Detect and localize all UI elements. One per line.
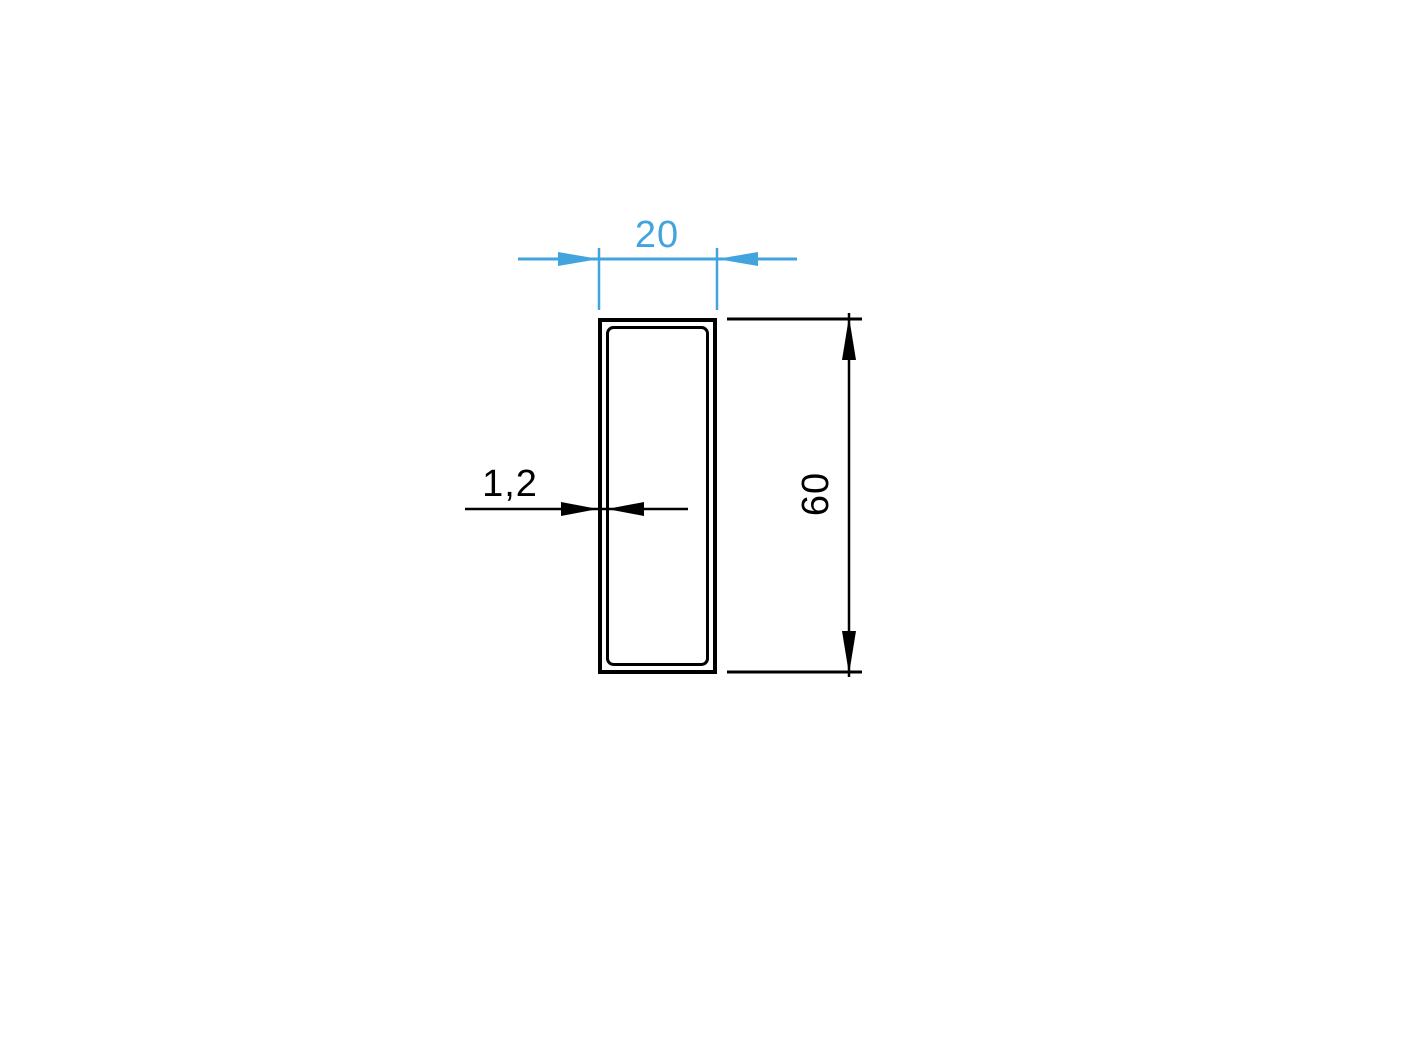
thickness-dimension-label: 1,2 — [482, 463, 538, 505]
drawing-canvas: 20 60 1,2 — [0, 0, 1417, 1062]
profile-inner-contour — [608, 328, 708, 665]
height-arrow-up-icon — [842, 317, 856, 360]
width-arrow-right-icon — [717, 252, 758, 266]
thickness-arrow-right-icon — [561, 502, 598, 516]
width-arrow-left-icon — [558, 252, 599, 266]
tube-profile — [600, 320, 715, 672]
height-arrow-down-icon — [842, 631, 856, 674]
width-dimension-label: 20 — [635, 214, 679, 256]
thickness-arrow-left-icon — [607, 502, 644, 516]
profile-outer-contour — [600, 320, 715, 672]
height-dimension-label: 60 — [795, 472, 837, 516]
height-dimension: 60 — [727, 313, 862, 677]
width-dimension: 20 — [518, 214, 797, 310]
technical-drawing: 20 60 1,2 — [0, 0, 1417, 1062]
thickness-dimension: 1,2 — [465, 463, 688, 516]
